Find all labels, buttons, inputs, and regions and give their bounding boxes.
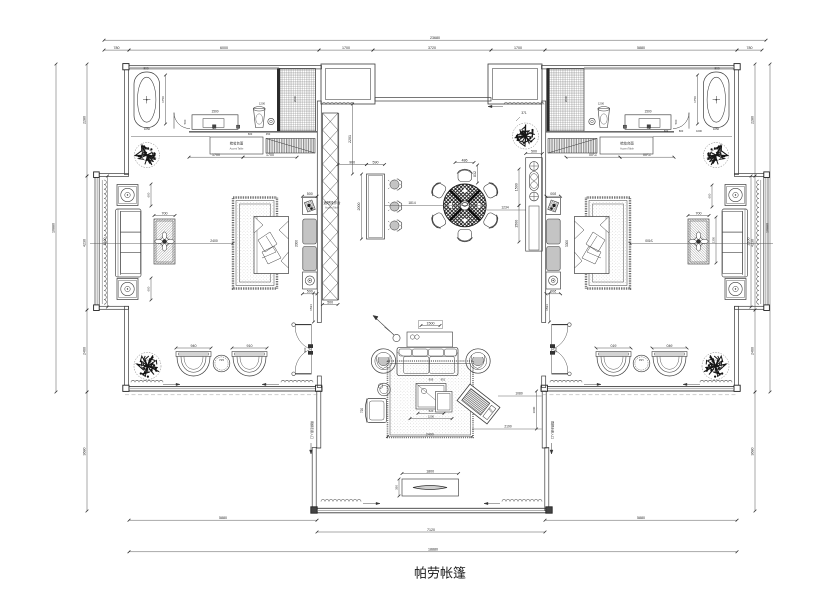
svg-text:1700: 1700 — [212, 153, 220, 157]
svg-text:帕劳帐篷: 帕劳帐篷 — [414, 566, 466, 581]
svg-text:720: 720 — [360, 408, 364, 414]
svg-text:1350: 1350 — [712, 236, 716, 243]
svg-text:2400: 2400 — [210, 239, 218, 243]
svg-text:2201: 2201 — [348, 135, 352, 143]
svg-text:780: 780 — [114, 46, 120, 50]
svg-text:雨棚走廊入口: 雨棚走廊入口 — [310, 421, 315, 439]
svg-text:1050: 1050 — [144, 127, 151, 131]
svg-text:500: 500 — [183, 119, 187, 124]
svg-text:2280: 2280 — [83, 116, 87, 124]
svg-text:5880: 5880 — [637, 46, 645, 50]
svg-text:500: 500 — [307, 290, 313, 294]
svg-text:2000: 2000 — [293, 95, 297, 102]
svg-text:910: 910 — [611, 344, 617, 348]
svg-text:450: 450 — [266, 132, 271, 136]
svg-text:2000: 2000 — [564, 95, 568, 102]
svg-text:酒吧操作台: 酒吧操作台 — [324, 200, 342, 205]
svg-text:1750: 1750 — [161, 96, 165, 103]
svg-text:雨棚走廊入口: 雨棚走廊入口 — [551, 421, 556, 439]
svg-text:1000: 1000 — [532, 406, 536, 413]
svg-text:7120: 7120 — [427, 528, 435, 532]
svg-text:1700: 1700 — [266, 153, 274, 157]
svg-text:600: 600 — [147, 286, 151, 291]
svg-text:Accent Table: Accent Table — [325, 207, 339, 210]
svg-text:500: 500 — [327, 300, 333, 304]
svg-text:600: 600 — [664, 129, 669, 133]
svg-text:2460: 2460 — [751, 347, 755, 355]
svg-text:4230: 4230 — [83, 239, 87, 247]
svg-text:500: 500 — [307, 192, 313, 196]
svg-text:1000: 1000 — [696, 129, 702, 133]
svg-text:10880: 10880 — [52, 223, 56, 233]
svg-text:725: 725 — [639, 358, 644, 362]
svg-text:1050: 1050 — [713, 127, 720, 131]
svg-text:900: 900 — [303, 347, 307, 352]
svg-text:940: 940 — [191, 344, 197, 348]
svg-text:940: 940 — [667, 344, 673, 348]
svg-text:Accent Table: Accent Table — [620, 148, 634, 151]
svg-text:600: 600 — [248, 132, 253, 136]
svg-text:800: 800 — [714, 67, 719, 71]
svg-text:Accent Table: Accent Table — [230, 148, 244, 151]
svg-text:700: 700 — [162, 211, 168, 215]
svg-text:486: 486 — [462, 158, 468, 162]
svg-text:1500: 1500 — [515, 220, 519, 228]
svg-text:2190: 2190 — [504, 424, 512, 428]
svg-text:3680: 3680 — [751, 448, 755, 456]
svg-text:800: 800 — [679, 129, 684, 133]
svg-text:23680: 23680 — [430, 36, 440, 40]
svg-text:5880: 5880 — [219, 516, 227, 520]
svg-text:2000: 2000 — [295, 240, 299, 247]
svg-text:2400: 2400 — [645, 239, 653, 243]
svg-text:2000: 2000 — [565, 240, 569, 247]
svg-text:1080: 1080 — [515, 391, 523, 395]
svg-text:500: 500 — [550, 192, 556, 196]
svg-text:2100: 2100 — [103, 238, 107, 246]
svg-text:5880: 5880 — [637, 516, 645, 520]
svg-text:900: 900 — [349, 160, 355, 164]
svg-text:1700: 1700 — [589, 153, 597, 157]
svg-text:780: 780 — [747, 46, 753, 50]
svg-text:800: 800 — [143, 67, 148, 71]
svg-text:1700: 1700 — [643, 153, 651, 157]
svg-text:2100: 2100 — [747, 238, 751, 246]
svg-text:725: 725 — [219, 358, 224, 362]
svg-text:600: 600 — [147, 192, 151, 197]
svg-text:6000: 6000 — [220, 46, 228, 50]
svg-text:1594: 1594 — [545, 304, 549, 311]
svg-text:590: 590 — [373, 160, 379, 164]
svg-text:2280: 2280 — [751, 116, 755, 124]
svg-text:梳妆台面: 梳妆台面 — [620, 141, 634, 146]
svg-text:1500: 1500 — [427, 321, 435, 325]
svg-text:3680: 3680 — [83, 448, 87, 456]
svg-text:1200: 1200 — [598, 102, 605, 106]
svg-text:1594: 1594 — [309, 304, 313, 311]
svg-text:1500: 1500 — [515, 183, 519, 191]
svg-text:910: 910 — [247, 344, 253, 348]
svg-text:1700: 1700 — [342, 46, 350, 50]
svg-text:1500: 1500 — [644, 109, 651, 113]
svg-text:1500: 1500 — [211, 109, 218, 113]
svg-text:700: 700 — [696, 211, 702, 215]
svg-text:900: 900 — [554, 347, 558, 352]
svg-text:520: 520 — [429, 409, 434, 413]
svg-text:350: 350 — [395, 485, 399, 490]
svg-text:18880: 18880 — [428, 548, 438, 552]
svg-text:3720: 3720 — [428, 46, 436, 50]
svg-text:1814: 1814 — [408, 201, 416, 205]
svg-text:600: 600 — [708, 193, 712, 198]
svg-text:2400: 2400 — [426, 432, 434, 436]
svg-text:901: 901 — [441, 378, 446, 382]
svg-text:371: 371 — [521, 111, 527, 115]
svg-text:4230: 4230 — [751, 239, 755, 247]
svg-text:500: 500 — [531, 149, 537, 153]
svg-text:906: 906 — [429, 378, 434, 382]
svg-text:10880: 10880 — [766, 223, 770, 233]
svg-text:1234: 1234 — [501, 205, 509, 209]
svg-text:832: 832 — [473, 171, 477, 177]
svg-text:1200: 1200 — [428, 414, 435, 418]
svg-text:2000: 2000 — [357, 203, 361, 211]
svg-text:2460: 2460 — [83, 347, 87, 355]
svg-text:500: 500 — [674, 119, 678, 124]
svg-text:1750: 1750 — [693, 96, 697, 103]
svg-text:梳妆台面: 梳妆台面 — [230, 141, 244, 146]
svg-text:1700: 1700 — [514, 46, 522, 50]
svg-text:1200: 1200 — [259, 102, 266, 106]
svg-text:500: 500 — [550, 290, 556, 294]
svg-text:1800: 1800 — [426, 469, 434, 473]
